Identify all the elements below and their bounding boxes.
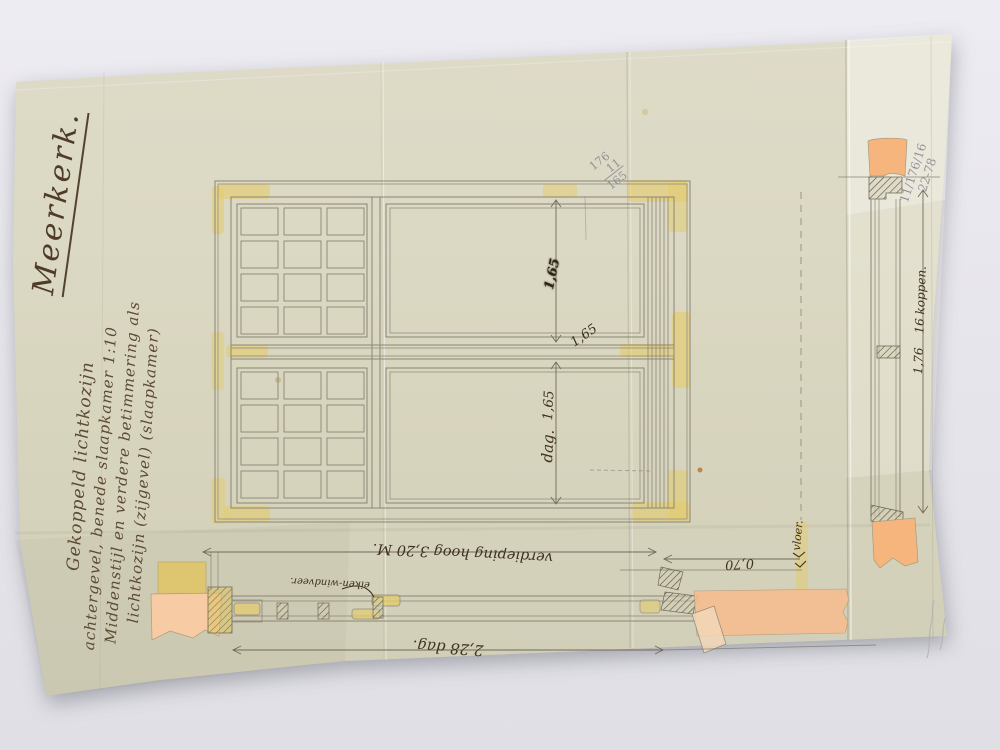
lower-pane-day-label: dag. (538, 429, 558, 463)
section-height-value: 1,76 (911, 347, 926, 374)
rust-spot (698, 468, 703, 473)
plan-left-post-hatch (208, 587, 232, 633)
section-brick-courses: 16 koppen. (912, 266, 928, 334)
middle-rail-hatch (877, 346, 900, 358)
photo-of-architectural-drawing: Meerkerk. Gekoppeld lichtkozijn achterge… (0, 0, 1000, 750)
masonry-top-wash (868, 138, 907, 176)
floor-label: vloer. (790, 520, 806, 551)
lower-pane-height: 1,65 (540, 390, 558, 421)
sill-height-dimension: 0,70 (726, 555, 755, 571)
oak-piece-hatch (373, 597, 383, 618)
